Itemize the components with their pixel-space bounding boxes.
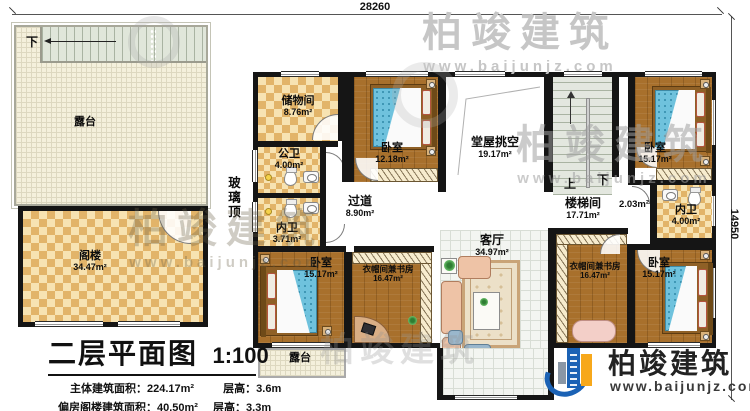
glass-roof-label: 玻璃顶 [226, 164, 240, 232]
nightstand [260, 254, 270, 264]
brand-logo-icon [542, 340, 606, 402]
bed-headboard [432, 85, 437, 151]
coffee-table [473, 292, 500, 330]
bed-headboard [708, 263, 713, 335]
wall [544, 77, 553, 192]
terrace-down-arrowhead [44, 38, 51, 44]
dimension-tick [9, 7, 16, 14]
stair-joint-dots [150, 29, 156, 61]
wall [438, 77, 446, 192]
wall [548, 228, 556, 348]
bed-headboard [706, 87, 711, 153]
terrace-stairs [40, 27, 206, 63]
storage-label: 储物间 8.76m² [260, 95, 336, 117]
bed-blanket [373, 88, 421, 147]
plan-title: 二层平面图 [48, 338, 198, 369]
wardrobe [370, 168, 438, 182]
drain [265, 208, 272, 215]
attic-label: 阁楼 34.47m² [55, 250, 125, 272]
floor-plan-canvas: 28260 14950 下 露台 阁楼 34.47m² 玻璃顶 储物间 8.76… [0, 0, 750, 411]
sink [303, 202, 319, 214]
plant [444, 260, 455, 271]
pillow [698, 269, 707, 296]
hall-void-label: 堂屋挑空 19.17m² [452, 136, 538, 160]
pillow [422, 90, 431, 115]
bed-headboard [261, 267, 266, 337]
terrace-left-label: 露台 [55, 116, 115, 128]
wall [342, 77, 354, 182]
brand-name: 柏竣建筑 [608, 342, 732, 382]
toilet [284, 170, 297, 186]
bed-blanket [655, 90, 695, 149]
wall [628, 77, 635, 180]
nightstand [700, 79, 710, 89]
pillow [267, 304, 276, 330]
landing-label: 2.03m² [614, 200, 654, 211]
sofa [441, 281, 462, 334]
toilet [284, 202, 297, 218]
bedroom-ne-label: 卧室 15.17m² [626, 142, 684, 164]
main-area-value: 224.17m² [147, 383, 194, 395]
plant [408, 316, 417, 325]
chair [448, 330, 463, 345]
table-decor [480, 298, 488, 306]
sink [662, 189, 678, 201]
main-height: 层高：3.6m [223, 383, 281, 395]
bedroom-nw-label: 卧室 12.18m² [356, 142, 428, 164]
annex-area-value: 40.50m² [157, 402, 198, 411]
stair-rail [586, 98, 590, 188]
title-underline [48, 374, 256, 376]
inner-bath-e-label: 内卫 4.00m² [662, 204, 710, 226]
stair-down-label: 下 [597, 171, 609, 188]
dimension-right: 14950 [728, 202, 740, 246]
plan-scale: 1:100 [212, 343, 268, 368]
pillow [698, 301, 707, 328]
corridor-label: 过道 8.90m² [330, 195, 390, 219]
logo-building-grey [558, 362, 566, 384]
attic-window [118, 321, 180, 327]
living-extension-floor [443, 348, 548, 395]
attic-window [35, 321, 103, 327]
dimension-line-top [12, 14, 722, 15]
terrace-down-arrow [50, 41, 116, 42]
bedroom-se-label: 卧室 15.17m² [630, 257, 688, 279]
wardrobe [556, 244, 568, 343]
logo-building-blue [567, 348, 580, 388]
stair-arrowhead [567, 91, 575, 98]
sink [303, 171, 319, 183]
pillow [696, 122, 705, 147]
cloak-study-e-label: 衣帽间兼书房 16.47m² [560, 262, 630, 280]
brand-site: www.baijunjz.com [610, 378, 750, 394]
drain [265, 174, 272, 181]
annex-area-label: 偏房阁楼建筑面积： [58, 402, 157, 411]
public-bath-label: 公卫 4.00m² [258, 148, 320, 170]
bed-blanket [277, 270, 317, 333]
hall-void-outline [446, 77, 544, 191]
annex-height: 层高：3.3m [213, 402, 271, 411]
stairwell-label: 楼梯间 17.71m² [548, 197, 618, 221]
wall [612, 77, 619, 177]
dimension-top: 28260 [335, 1, 415, 13]
pillow [696, 92, 705, 117]
stair-arrow [570, 96, 571, 124]
nightstand [700, 250, 710, 260]
inner-bath-w-label: 内卫 3.71m² [256, 222, 318, 244]
nightstand [426, 79, 436, 89]
stair-up-label: 上 [564, 175, 576, 192]
logo-building-orange [581, 354, 592, 386]
dimension-tick [717, 7, 724, 14]
main-area-label: 主体建筑面积： [70, 383, 147, 395]
window [455, 395, 517, 400]
sofa [458, 256, 491, 279]
brand-logo: 柏竣建筑 www.baijunjz.com [542, 338, 738, 404]
living-label: 客厅 34.97m² [454, 234, 530, 258]
wall [650, 185, 657, 238]
bedroom-sw-label: 卧室 15.17m² [296, 257, 346, 279]
title-block: 二层平面图 1:100 主体建筑面积：224.17m² 层高：3.6m 偏房阁楼… [48, 332, 348, 411]
cloak-study-w-label: 衣帽间兼书房 16.47m² [352, 265, 424, 283]
nightstand [700, 156, 710, 166]
pillow [267, 273, 276, 299]
bed [370, 84, 436, 150]
terrace-down-label: 下 [26, 33, 38, 50]
